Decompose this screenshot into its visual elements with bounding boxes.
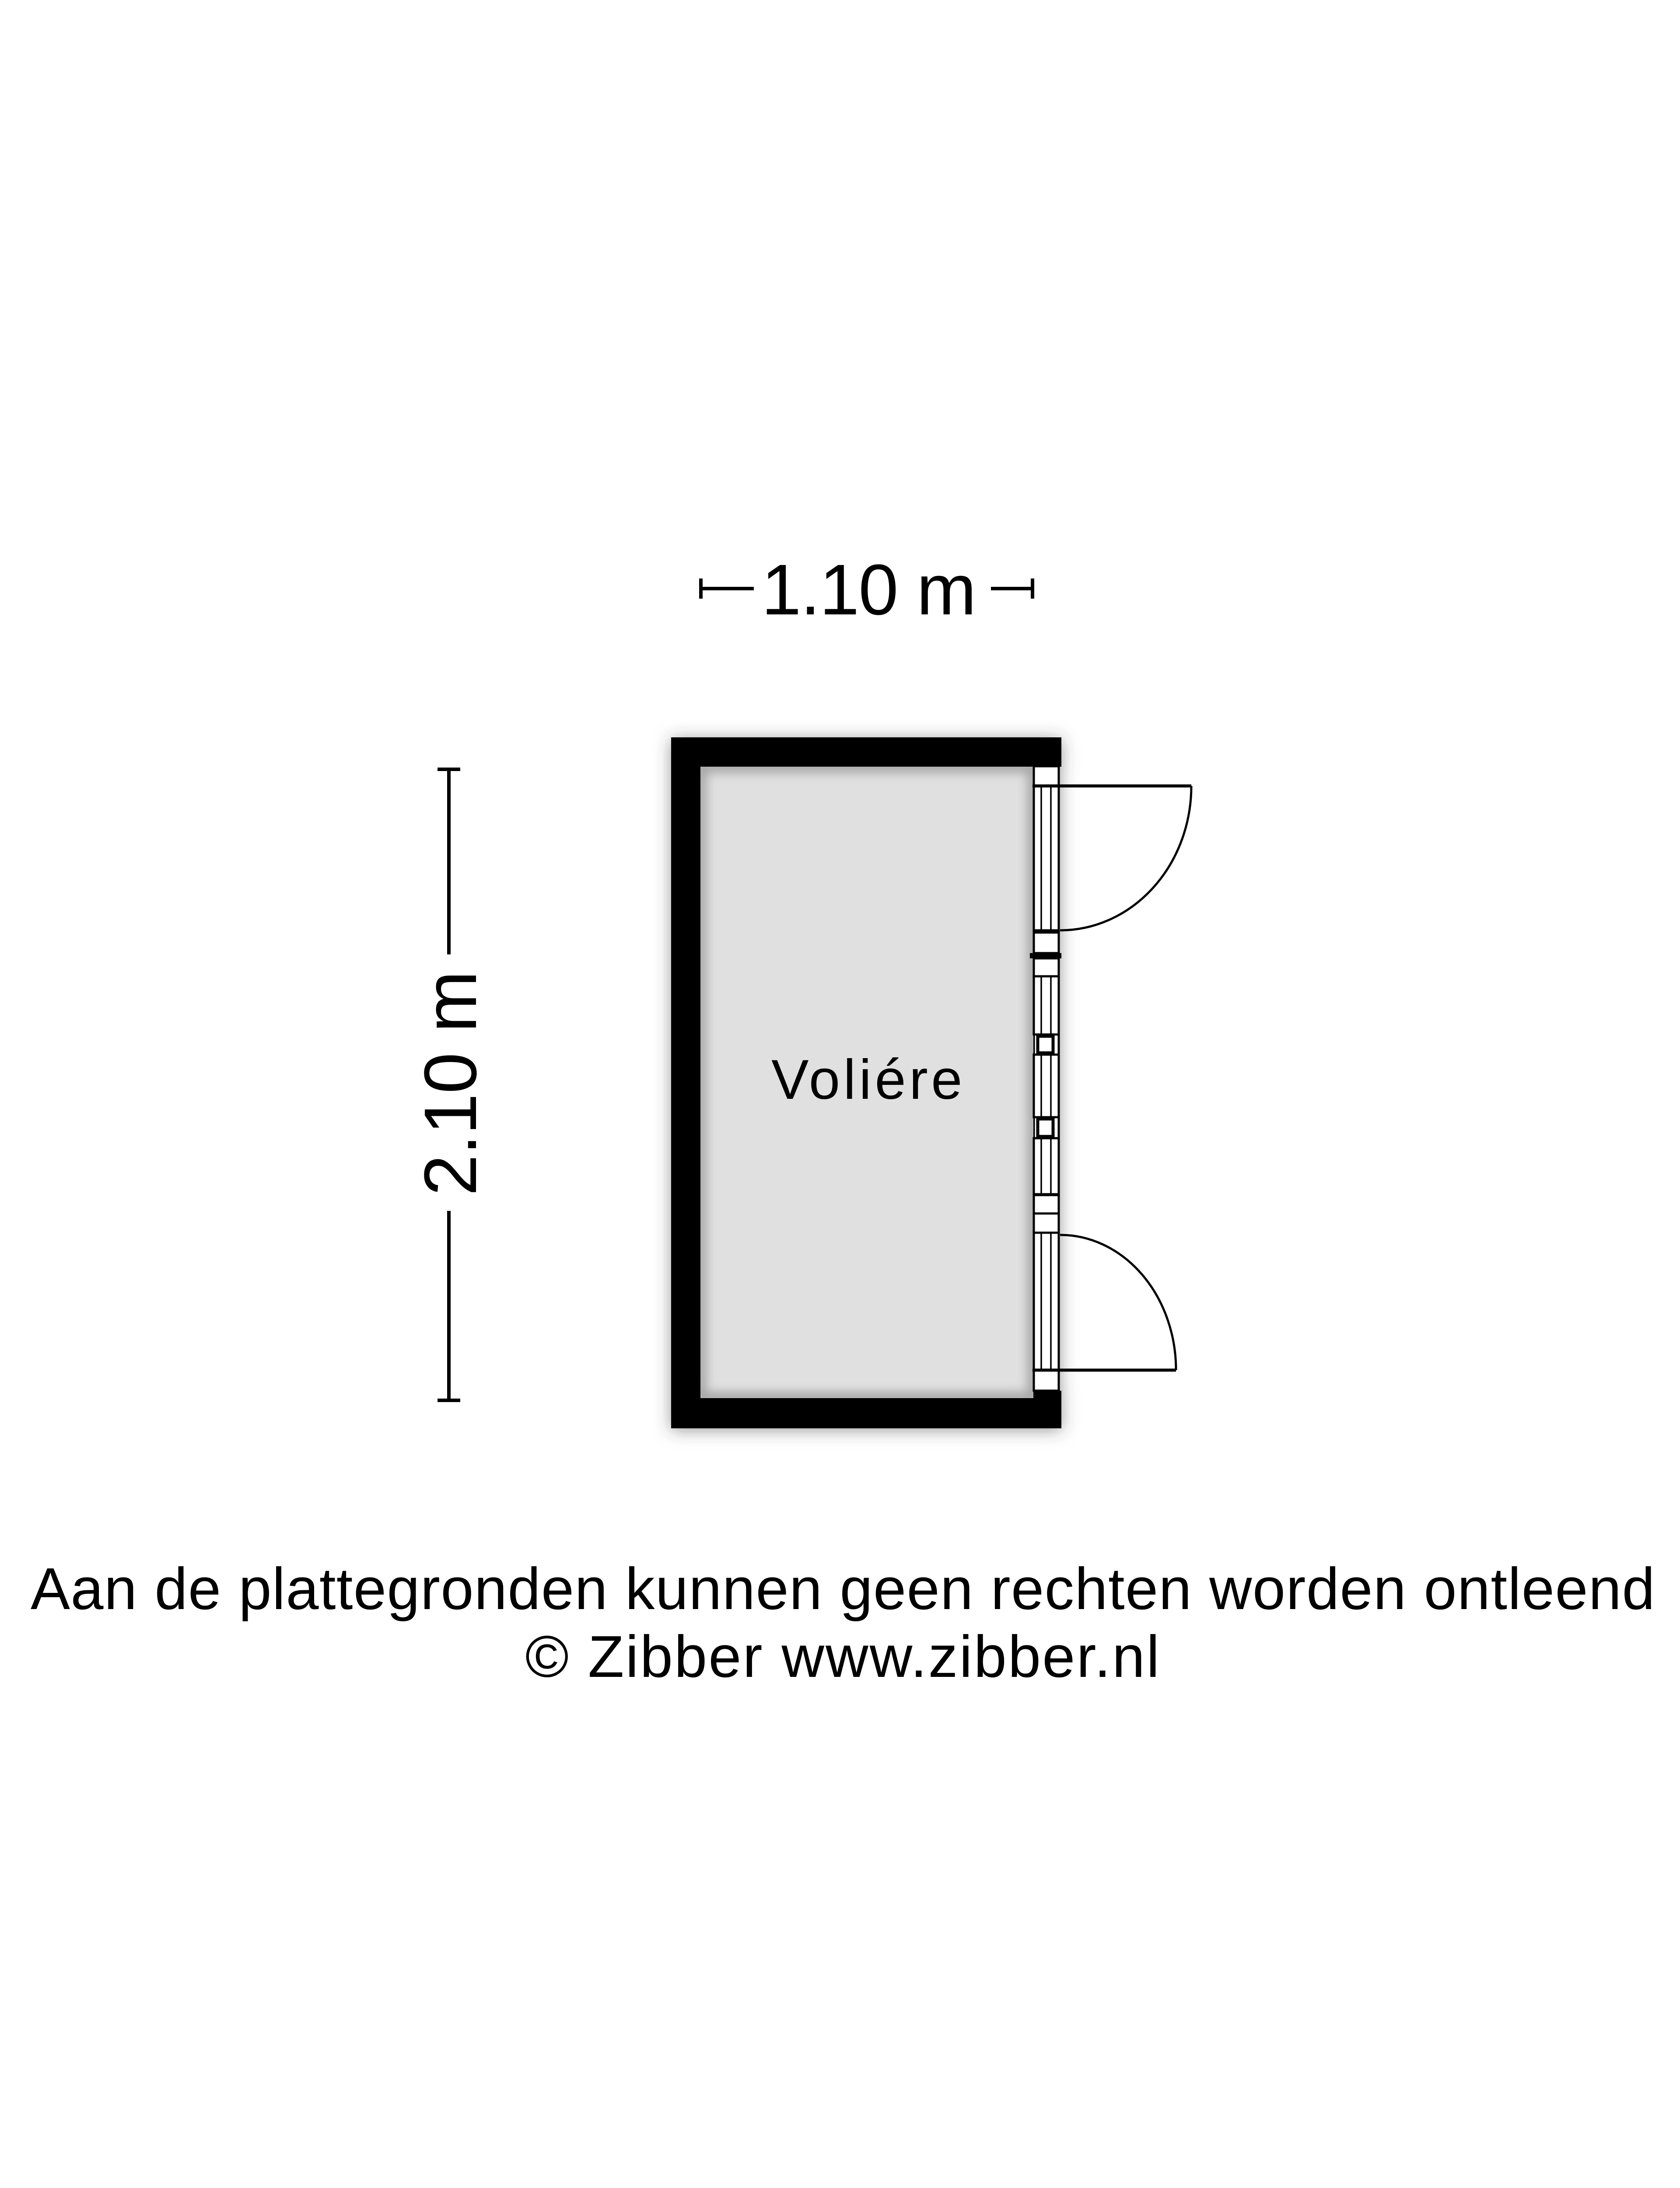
svg-text:Voliére: Voliére (771, 1048, 966, 1111)
svg-text:2.10 m: 2.10 m (409, 971, 492, 1196)
svg-text:Aan de plattegronden kunnen ge: Aan de plattegronden kunnen geen rechten… (31, 1556, 1655, 1622)
svg-text:© Zibber www.zibber.nl: © Zibber www.zibber.nl (525, 1623, 1161, 1690)
svg-text:1.10 m: 1.10 m (761, 550, 975, 630)
